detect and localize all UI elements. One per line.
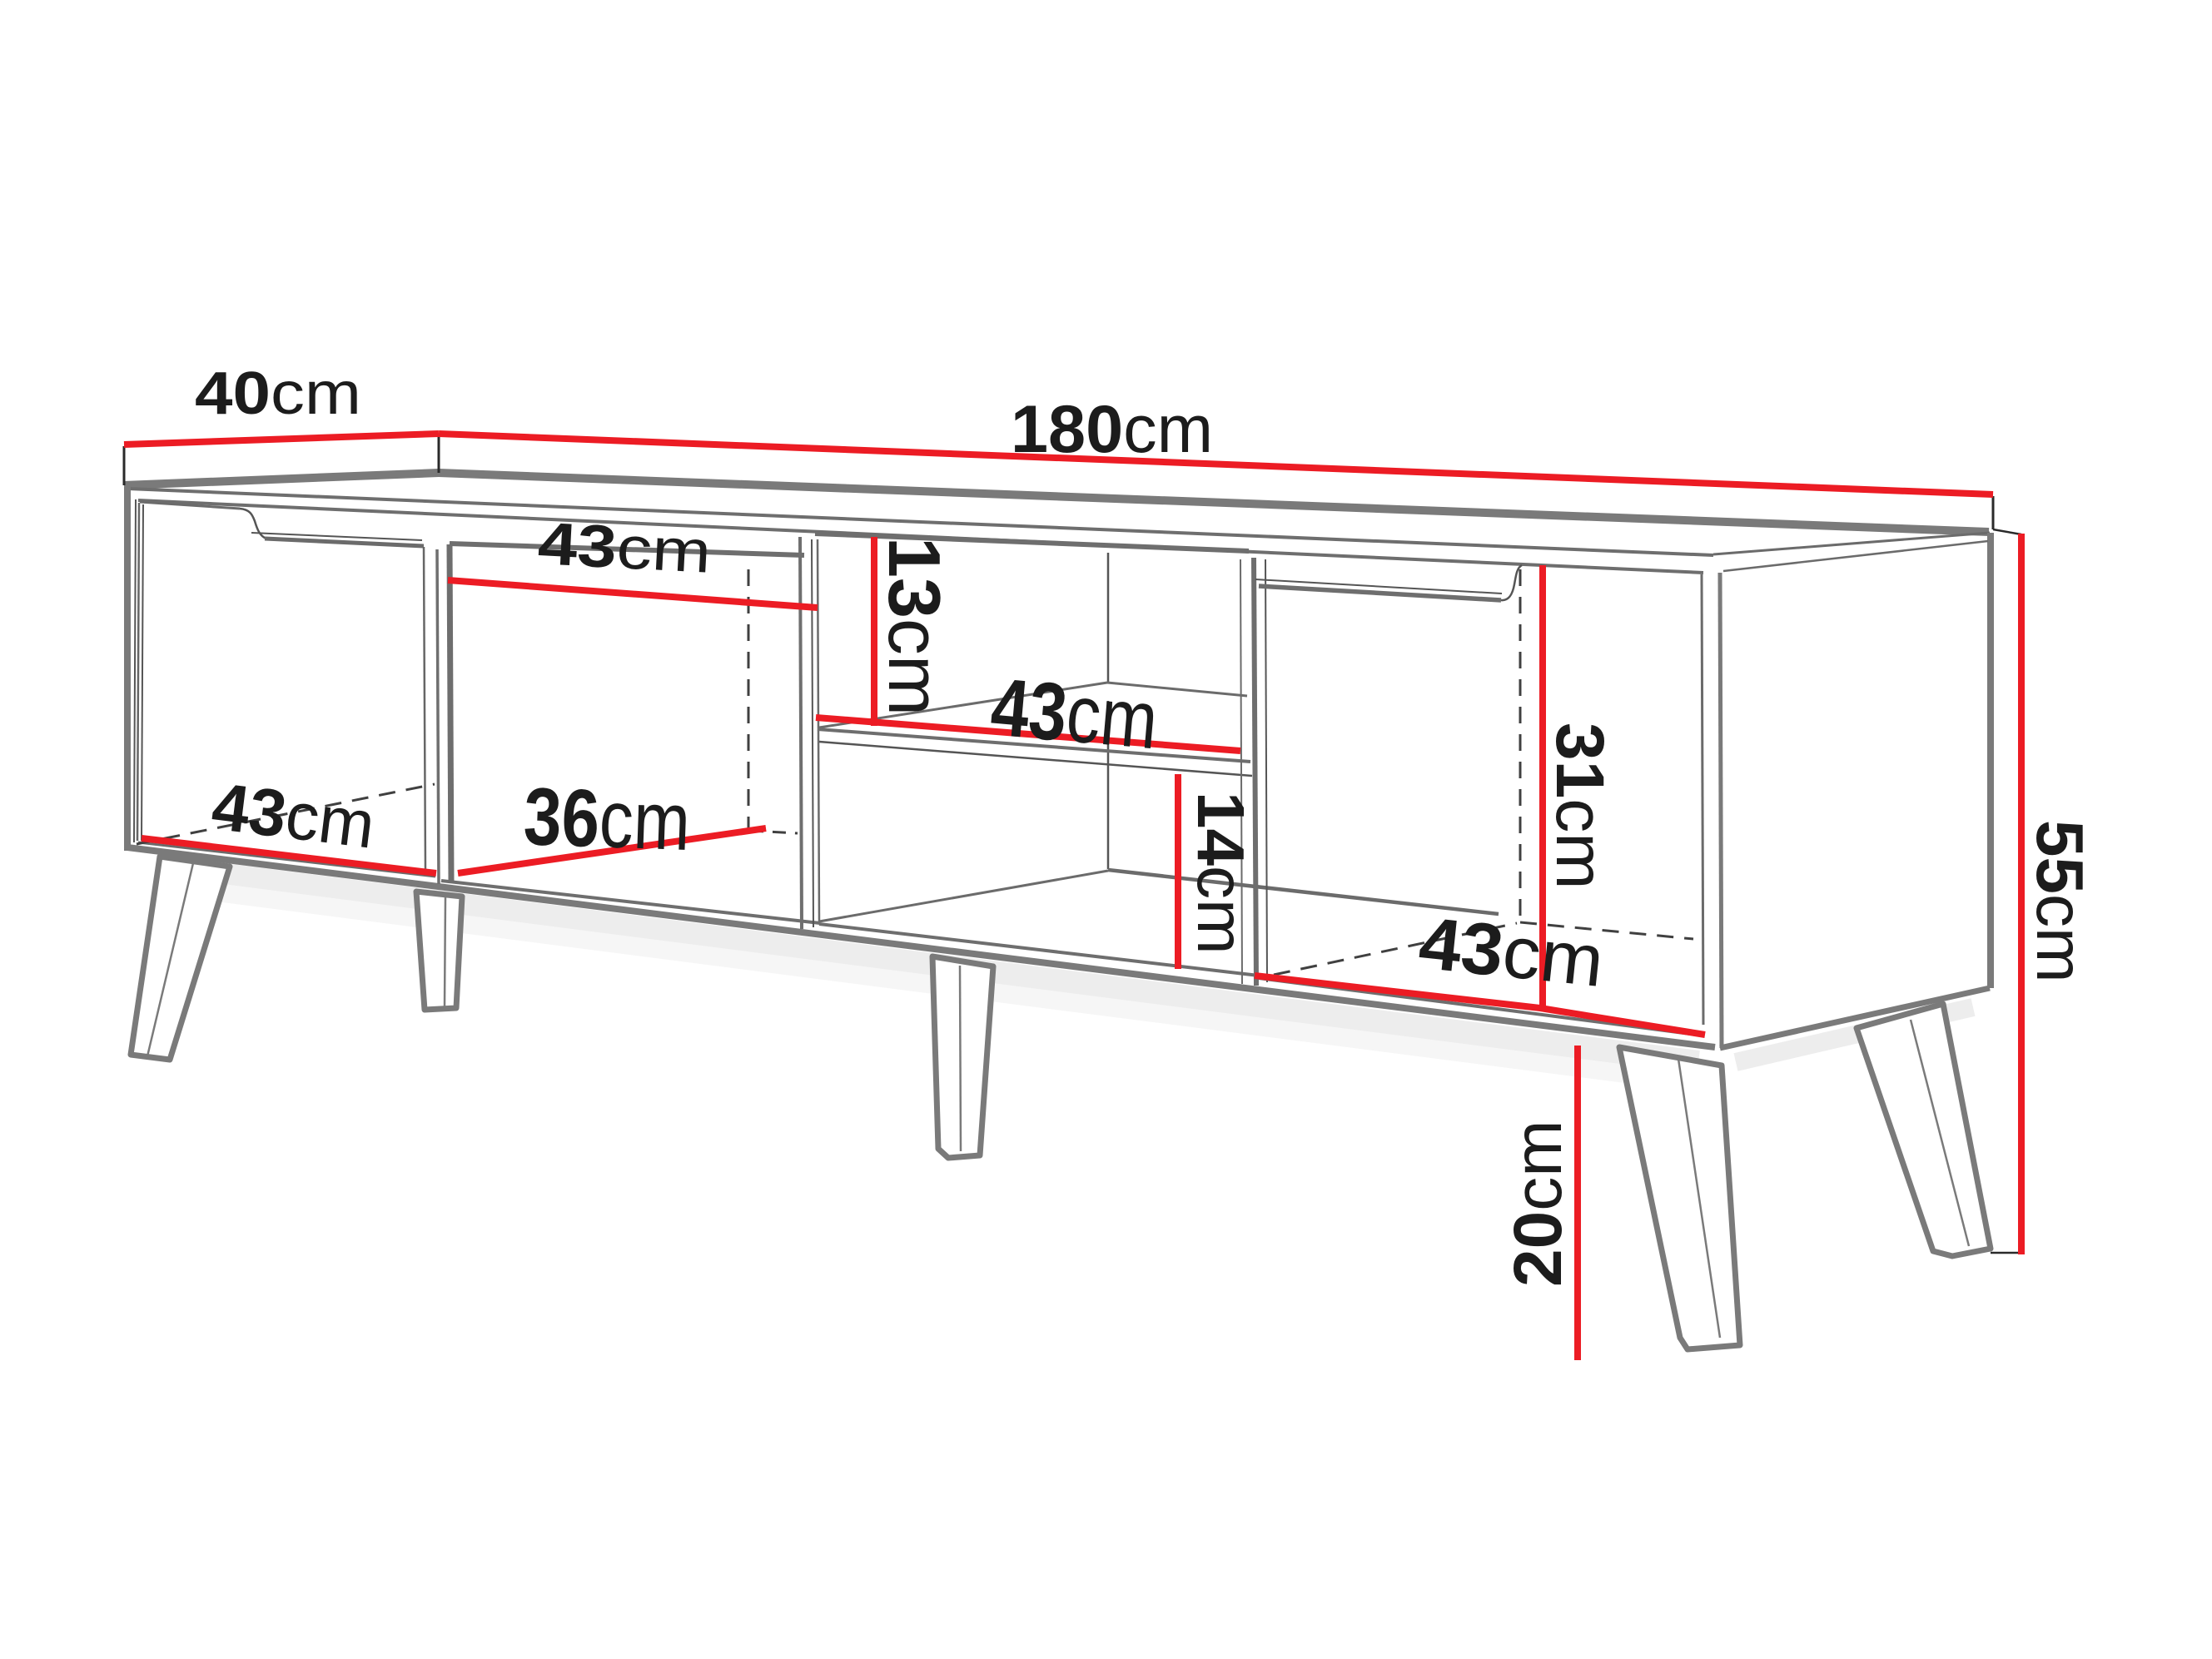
svg-text:14cm: 14cm — [1184, 792, 1258, 955]
svg-text:36cm: 36cm — [522, 770, 692, 867]
svg-text:13cm: 13cm — [873, 537, 956, 716]
svg-text:31cm: 31cm — [1542, 723, 1618, 890]
svg-text:20cm: 20cm — [1500, 1120, 1576, 1287]
svg-text:43cm: 43cm — [536, 510, 713, 586]
svg-text:43cm: 43cm — [987, 660, 1161, 766]
svg-text:55cm: 55cm — [2023, 820, 2097, 983]
svg-text:40cm: 40cm — [195, 360, 361, 427]
svg-text:180cm: 180cm — [1011, 392, 1213, 467]
